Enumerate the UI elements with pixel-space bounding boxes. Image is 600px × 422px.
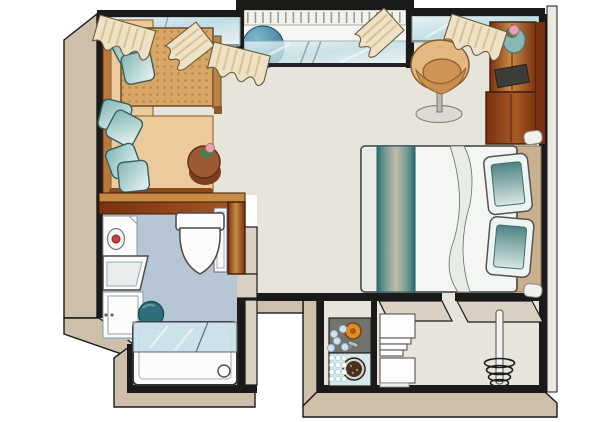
floor-plan — [0, 0, 600, 422]
pot-speckle — [350, 365, 352, 367]
bed-left-shade — [363, 148, 376, 290]
pot-speckle — [356, 369, 358, 371]
mirror-red-dot — [112, 235, 120, 243]
wall-top-right — [412, 8, 545, 16]
burner-center — [350, 328, 356, 334]
shelf-cabinet-base — [380, 383, 409, 387]
balcony-frame-outer — [236, 0, 414, 10]
pot-speckle — [352, 372, 354, 374]
flower — [206, 144, 215, 153]
bedside-post — [523, 130, 543, 145]
wall-bed-south — [323, 293, 442, 301]
pot-contents — [346, 361, 362, 377]
sofa-cushion — [117, 160, 150, 193]
bedside-post — [523, 283, 542, 298]
wall-kitchen-divider — [371, 300, 377, 388]
bathroom-doorframe — [228, 202, 245, 274]
wash-basin-bowl — [107, 262, 142, 286]
bathroom-wood-wall-top — [99, 193, 245, 202]
shelf-step — [380, 344, 407, 350]
tub-drain — [218, 365, 230, 377]
shelf-tower — [380, 314, 415, 338]
exterior-left-band — [64, 14, 97, 318]
bed-pillow — [483, 153, 533, 215]
wardrobe-flower — [509, 25, 519, 35]
shelf-cabinet — [380, 358, 415, 383]
cabinet-handle — [104, 313, 107, 316]
wall-left — [97, 14, 103, 318]
shelf-step — [380, 350, 403, 356]
exterior-bottom-band — [303, 392, 557, 417]
wall-top-left — [97, 10, 243, 17]
kitchenette — [327, 314, 415, 387]
exterior-right-band — [547, 6, 557, 392]
wall-bath-east-lower — [237, 296, 245, 392]
bed-pillow — [486, 216, 535, 278]
table-foot — [214, 106, 222, 114]
bed-runner — [377, 146, 415, 292]
walltop-bath-east-lower — [245, 300, 257, 385]
wardrobe-upper-side — [536, 22, 545, 92]
shelf-step — [380, 338, 411, 344]
wall-kitchen-west — [317, 295, 324, 392]
exterior-kitchen-west — [303, 295, 317, 406]
cabinet-handle — [110, 313, 113, 316]
faucet-base — [348, 345, 352, 349]
